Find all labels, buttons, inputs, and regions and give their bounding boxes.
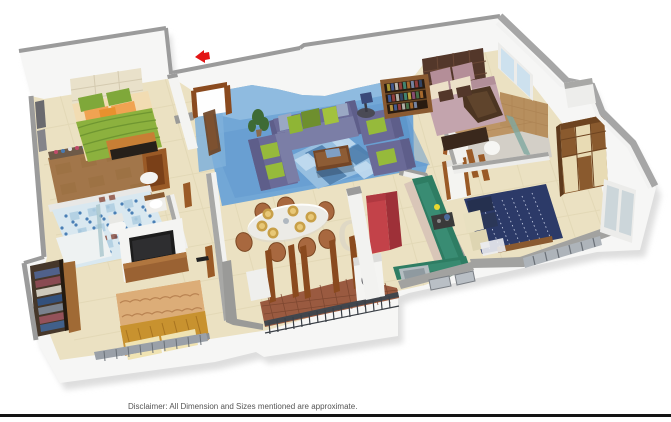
svg-text:Disclaimer: All Dimension and: Disclaimer: All Dimension and Sizes ment…: [128, 402, 357, 411]
